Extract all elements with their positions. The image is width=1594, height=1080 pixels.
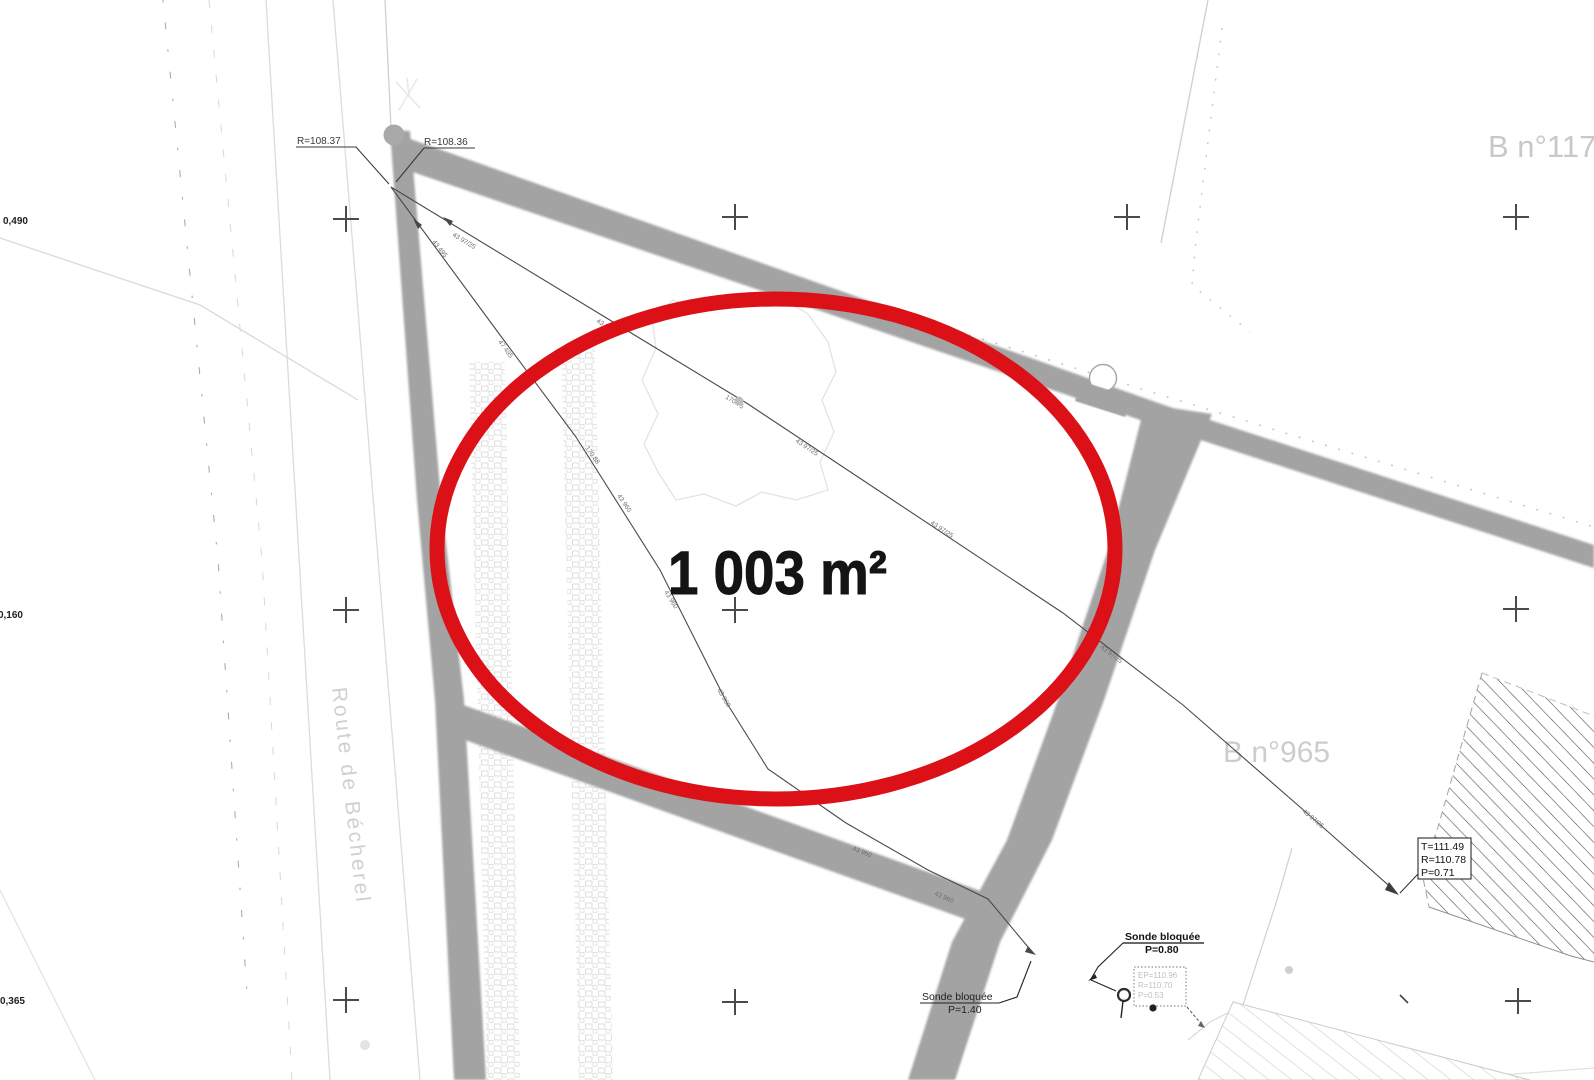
- svg-text:P=0.53: P=0.53: [1138, 991, 1164, 1000]
- svg-text:P=1.40: P=1.40: [948, 1004, 982, 1016]
- svg-text:B n°965: B n°965: [1223, 736, 1330, 769]
- svg-text:0,490: 0,490: [3, 216, 28, 227]
- svg-text:Sonde bloquée: Sonde bloquée: [1125, 931, 1200, 943]
- svg-text:1 003 m²: 1 003 m²: [668, 539, 887, 608]
- svg-text:Sonde bloquée: Sonde bloquée: [922, 991, 993, 1003]
- svg-text:0,160: 0,160: [0, 610, 23, 621]
- svg-text:R=110.78: R=110.78: [1421, 854, 1466, 866]
- svg-text:R=108.36: R=108.36: [424, 137, 468, 148]
- svg-text:P=0.71: P=0.71: [1421, 867, 1455, 879]
- svg-text:0,365: 0,365: [0, 996, 25, 1007]
- svg-text:T=111.49: T=111.49: [1421, 841, 1464, 853]
- svg-text:R=108.37: R=108.37: [297, 136, 341, 147]
- svg-text:EP=110.96: EP=110.96: [1138, 971, 1178, 980]
- svg-text:B n°1174: B n°1174: [1488, 129, 1594, 164]
- svg-text:P=0.80: P=0.80: [1145, 944, 1179, 956]
- svg-text:R=110.70: R=110.70: [1138, 981, 1173, 990]
